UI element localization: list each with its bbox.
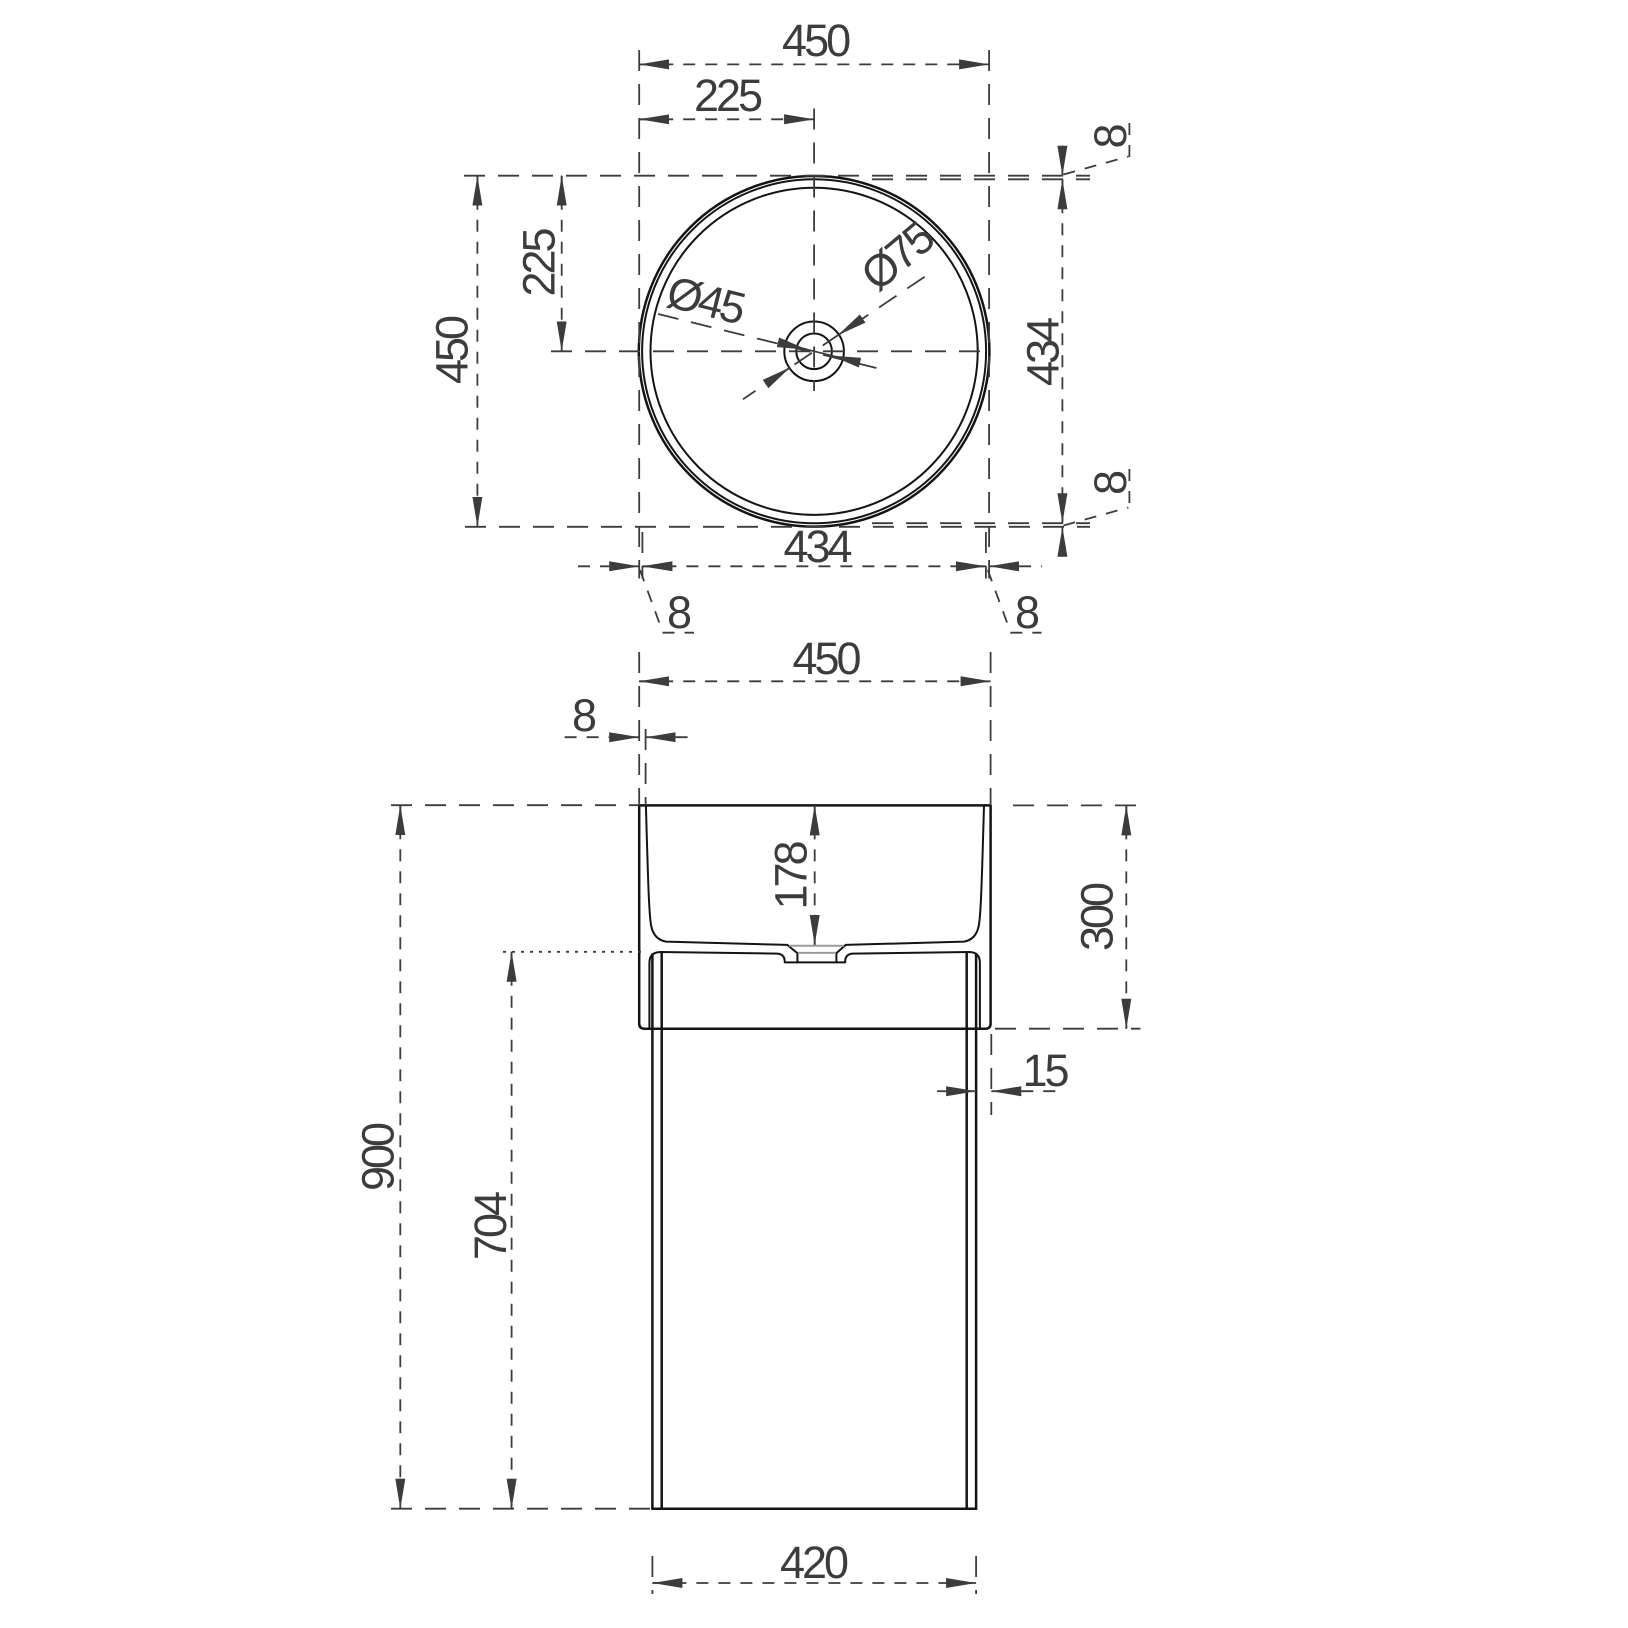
- svg-text:225: 225: [694, 70, 762, 121]
- svg-text:704: 704: [465, 1192, 516, 1260]
- svg-text:450: 450: [427, 316, 478, 384]
- svg-text:8: 8: [1015, 587, 1039, 638]
- svg-text:178: 178: [766, 841, 817, 909]
- svg-text:450: 450: [782, 15, 850, 66]
- svg-text:434: 434: [783, 521, 851, 572]
- svg-text:900: 900: [353, 1123, 404, 1191]
- svg-text:15: 15: [1022, 1045, 1068, 1096]
- svg-text:300: 300: [1072, 883, 1123, 951]
- svg-text:8: 8: [1085, 125, 1136, 149]
- svg-text:8: 8: [1085, 471, 1136, 495]
- svg-text:225: 225: [514, 228, 565, 296]
- svg-text:434: 434: [1018, 318, 1069, 386]
- svg-text:420: 420: [780, 1537, 848, 1588]
- svg-text:8: 8: [667, 587, 691, 638]
- svg-text:450: 450: [792, 633, 860, 684]
- svg-text:8: 8: [572, 690, 596, 741]
